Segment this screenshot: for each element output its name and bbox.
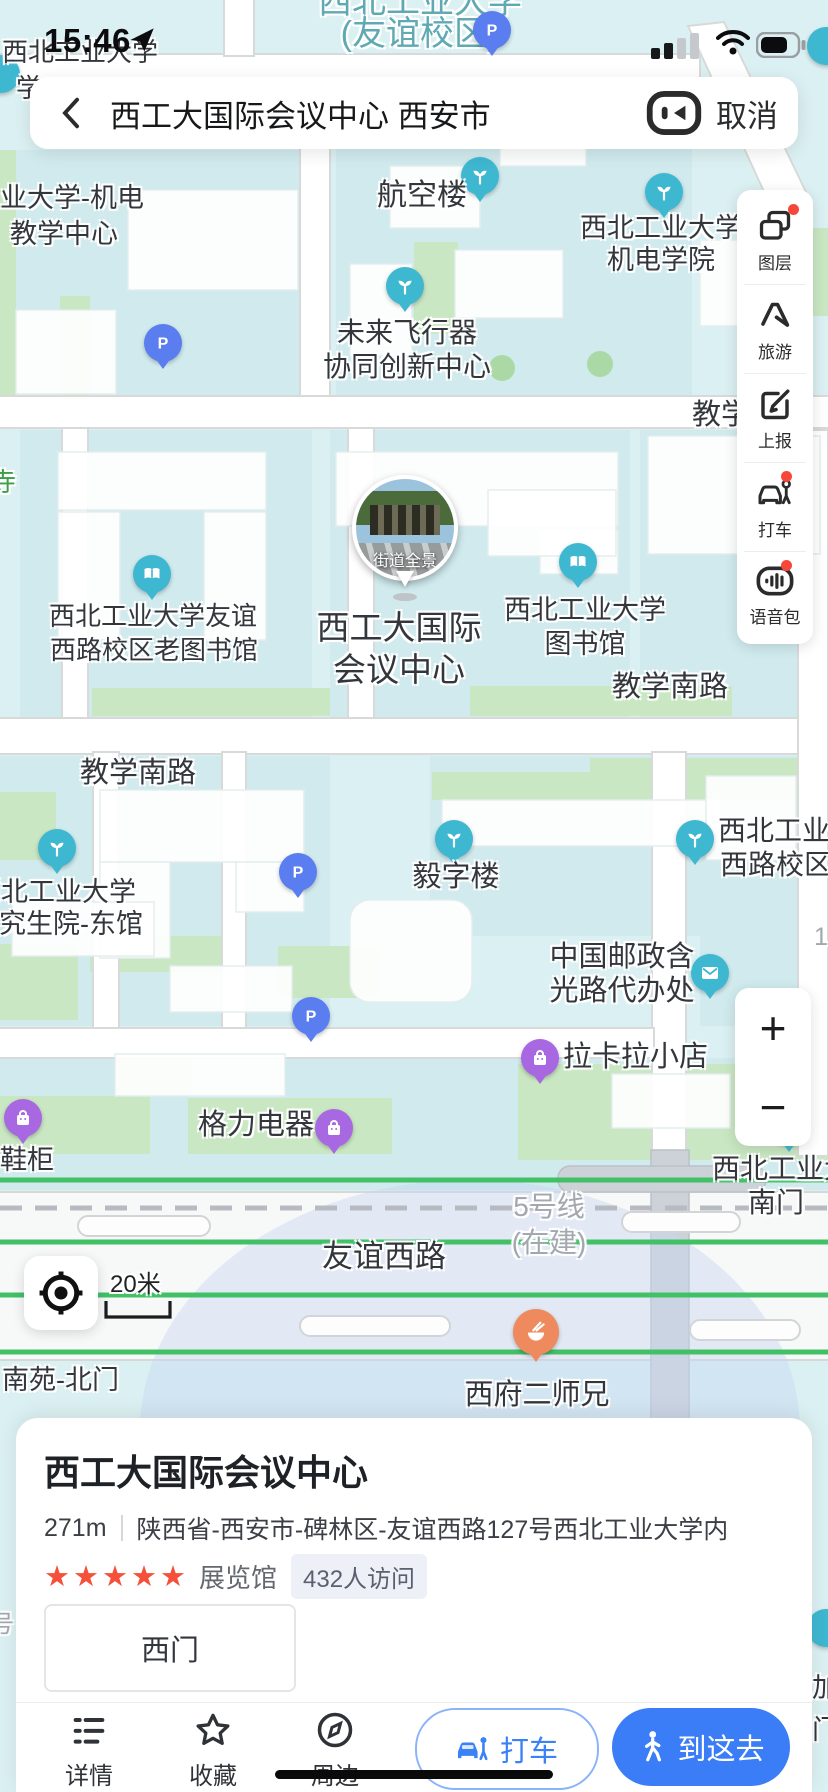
post-office-line1-label[interactable]: 中国邮政含 <box>549 942 694 973</box>
zoom-in-button[interactable]: + <box>760 1005 787 1051</box>
road-jiaoxue-south-right-label: 教学南路 <box>612 672 728 703</box>
campus-west-marker-marker[interactable] <box>676 820 714 858</box>
grad-school-line1-label[interactable]: 西北工业大学 <box>0 878 136 907</box>
walk-icon <box>637 1730 667 1764</box>
map-scale: 20米 <box>104 1264 172 1326</box>
yizi-building-label[interactable]: 毅字楼 <box>412 862 499 893</box>
jidian-college-marker-marker[interactable] <box>645 173 683 211</box>
location-arrow-icon <box>128 26 156 54</box>
star-icon <box>193 1710 233 1750</box>
post-office-marker-marker[interactable] <box>691 954 729 992</box>
digit-fragment-label: 1 <box>814 924 828 951</box>
app-screen: 西北工业大学(友谊校区)教学寺教学南路教学南路15号线(在建)友谊西路号P P … <box>0 0 828 1792</box>
yizi-marker-marker[interactable] <box>435 820 473 858</box>
poi-address: 陕西省-西安市-碑林区-友谊西路127号西北工业大学内 <box>137 1510 729 1546</box>
signal-icon <box>651 30 707 60</box>
zoom-out-button[interactable]: − <box>760 1084 787 1130</box>
food-marker-marker[interactable] <box>513 1309 559 1355</box>
poi-card: 西工大国际会议中心 271m 陕西省-西安市-碑林区-友谊西路127号西北工业大… <box>16 1418 812 1792</box>
campus-west-line1-label[interactable]: 西北工业大 <box>718 816 828 846</box>
rail-item-taxi[interactable]: 打车 <box>744 462 806 551</box>
back-icon[interactable] <box>56 96 86 130</box>
wifi-icon <box>716 30 750 56</box>
xifu-restaurant-label[interactable]: 西府二师兄 <box>464 1380 609 1411</box>
locate-icon <box>38 1270 84 1316</box>
favorite-label: 收藏 <box>189 1756 237 1791</box>
poi-distance: 271m <box>44 1514 107 1543</box>
rail-item-report[interactable]: 上报 <box>744 373 806 462</box>
svg-text:P: P <box>293 865 304 882</box>
road-jiaoxue-south-left-label: 教学南路 <box>80 758 196 789</box>
parking-1-marker[interactable]: P <box>144 324 182 362</box>
svg-text:P: P <box>158 336 169 353</box>
rail-label-layers: 图层 <box>758 249 792 274</box>
weilai-marker-marker[interactable] <box>386 267 424 305</box>
nanyuan-north-gate-label[interactable]: 南苑-北门 <box>2 1366 119 1395</box>
street-view-bubble[interactable]: 街道全景 <box>352 475 458 581</box>
parking-2-marker[interactable]: P <box>279 853 317 891</box>
conference-line1-label[interactable]: 西工大国际 <box>317 610 482 646</box>
jidian-college-line2-label[interactable]: 机电学院 <box>607 246 715 275</box>
library-line1-label[interactable]: 西北工业大学 <box>504 596 666 625</box>
status-bar: 15:46 <box>0 0 828 70</box>
temple-char-label: 寺 <box>0 468 16 496</box>
jidian-college-line1-label[interactable]: 西北工业大学 <box>580 214 742 243</box>
metro-line5-label: 5号线 <box>513 1192 585 1222</box>
campus-west-line2-label[interactable]: 西路校区 <box>720 850 828 880</box>
rail-label-travel: 旅游 <box>758 338 792 363</box>
tool-rail: 图层 旅游 上报 打车 <box>737 190 813 644</box>
post-office-line2-label[interactable]: 光路代办处 <box>549 976 694 1007</box>
poi-category: 展览馆 <box>199 1558 277 1595</box>
street-view-caption: 街道全景 <box>356 547 454 571</box>
notification-dot <box>781 560 792 571</box>
poi-title: 西工大国际会议中心 <box>44 1444 368 1496</box>
weilai-line1-label[interactable]: 未来飞行器 <box>337 318 477 348</box>
rail-item-layers[interactable]: 图层 <box>737 196 813 284</box>
grad-school-marker-marker[interactable] <box>38 829 76 867</box>
rail-label-taxi: 打车 <box>758 516 792 541</box>
library-marker-marker[interactable] <box>559 543 597 581</box>
locate-button[interactable] <box>24 1256 98 1330</box>
hangkonglou-label[interactable]: 航空楼 <box>377 180 467 212</box>
taxi-pill-label: 打车 <box>500 1728 558 1770</box>
geli-marker-marker[interactable] <box>315 1109 353 1147</box>
search-bar: 西工大国际会议中心 西安市 取消 <box>30 77 798 149</box>
visitors-badge: 432人访问 <box>291 1554 427 1599</box>
rail-label-report: 上报 <box>758 427 792 452</box>
home-indicator[interactable] <box>275 1770 553 1779</box>
divider <box>16 1702 812 1703</box>
geli-appliance-label[interactable]: 格力电器 <box>198 1110 314 1141</box>
rail-label-voice: 语音包 <box>750 603 801 628</box>
south-gate-line2-label[interactable]: 南门 <box>748 1188 804 1218</box>
street-view-photo: 街道全景 <box>352 475 458 581</box>
edge-men-char-label[interactable]: 门 <box>812 1716 828 1745</box>
status-time: 15:46 <box>44 22 131 60</box>
road-youyi-west-label: 友谊西路 <box>322 1240 446 1273</box>
star-rating: ★★★★★ <box>44 1559 189 1594</box>
weilai-line2-label[interactable]: 协同创新中心 <box>323 352 491 382</box>
poi-subtitle-row: 271m 陕西省-西安市-碑林区-友谊西路127号西北工业大学内 <box>44 1510 728 1546</box>
lakala-marker-marker[interactable] <box>521 1039 559 1077</box>
go-here-button[interactable]: 到这去 <box>612 1708 790 1786</box>
xiegui-marker-marker[interactable] <box>4 1099 42 1137</box>
rail-item-voice[interactable]: 语音包 <box>744 551 806 638</box>
old-library-line1-label[interactable]: 西北工业大学友谊 <box>49 602 257 630</box>
compass-icon <box>315 1710 355 1750</box>
details-button[interactable]: 详情 <box>44 1710 134 1791</box>
poi-rating-row: ★★★★★ 展览馆 432人访问 <box>44 1554 427 1599</box>
grad-school-line2-label[interactable]: 研究生院-东馆 <box>0 910 143 939</box>
scale-bracket <box>104 1299 172 1321</box>
zoom-panel: + − <box>735 988 811 1146</box>
old-library-line2-label[interactable]: 西路校区老图书馆 <box>50 636 258 664</box>
svg-text:P: P <box>306 1009 317 1026</box>
jidian-center-line1-label[interactable]: 业大学-机电 <box>0 184 144 213</box>
search-input[interactable]: 西工大国际会议中心 西安市 <box>110 91 646 136</box>
details-label: 详情 <box>65 1756 113 1791</box>
assistant-icon[interactable] <box>646 90 702 136</box>
travel-icon <box>757 297 793 333</box>
details-icon <box>69 1710 109 1750</box>
parking-3-marker[interactable]: P <box>292 997 330 1035</box>
rail-item-travel[interactable]: 旅游 <box>744 284 806 373</box>
favorite-button[interactable]: 收藏 <box>168 1710 258 1791</box>
taxi-car-icon <box>456 1734 490 1764</box>
report-icon <box>757 386 793 422</box>
edge-hao-char-label: 号 <box>0 1612 14 1638</box>
battery-icon <box>756 32 806 58</box>
west-gate-label: 西门 <box>141 1627 199 1669</box>
notification-dot <box>781 471 792 482</box>
xiegui-shop-label[interactable]: 鞋柜 <box>0 1146 54 1175</box>
divider <box>121 1515 123 1541</box>
layers-icon <box>757 208 793 244</box>
jidian-center-line2-label[interactable]: 教学中心 <box>10 220 118 249</box>
south-gate-line1-label[interactable]: 西北工业大 <box>712 1154 828 1184</box>
lakala-shop-label[interactable]: 拉卡拉小店 <box>563 1042 708 1073</box>
cancel-button[interactable]: 取消 <box>716 91 778 136</box>
old-library-marker-marker[interactable] <box>133 555 171 593</box>
conference-line2-label[interactable]: 会议中心 <box>333 652 465 688</box>
go-here-label: 到这去 <box>677 1726 764 1768</box>
notification-dot <box>788 204 799 215</box>
metro-line5-status-label: (在建) <box>512 1228 587 1258</box>
scale-label: 20米 <box>110 1264 172 1299</box>
west-gate-button[interactable]: 西门 <box>44 1604 296 1692</box>
library-line2-label[interactable]: 图书馆 <box>545 630 626 659</box>
edge-jia-char-label[interactable]: 加 <box>812 1674 828 1703</box>
